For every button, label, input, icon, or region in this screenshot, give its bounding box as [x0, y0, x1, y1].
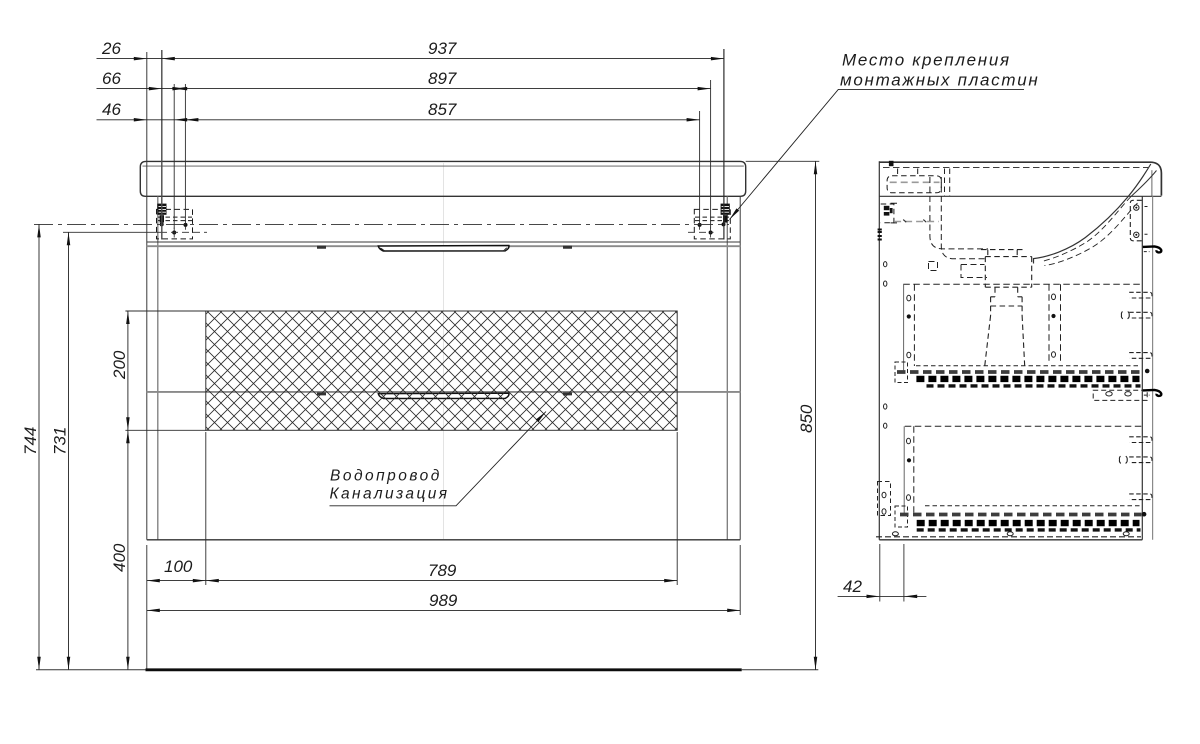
svg-text:400: 400	[110, 543, 129, 572]
svg-text:857: 857	[428, 100, 457, 119]
svg-text:Канализация: Канализация	[330, 486, 450, 503]
svg-text:42: 42	[843, 577, 862, 596]
svg-text:989: 989	[429, 591, 458, 610]
svg-text:66: 66	[102, 69, 121, 88]
svg-text:200: 200	[110, 350, 129, 380]
svg-text:Место крепления: Место крепления	[842, 51, 1011, 70]
svg-text:789: 789	[428, 561, 457, 580]
svg-text:937: 937	[428, 39, 457, 58]
svg-text:897: 897	[428, 69, 457, 88]
svg-text:100: 100	[164, 557, 193, 576]
svg-text:26: 26	[101, 39, 121, 58]
svg-text:Водопровод: Водопровод	[330, 468, 442, 485]
svg-text:850: 850	[797, 404, 816, 433]
svg-text:731: 731	[51, 427, 70, 455]
svg-text:монтажных пластин: монтажных пластин	[840, 71, 1039, 90]
svg-text:744: 744	[21, 427, 40, 455]
svg-text:46: 46	[102, 100, 121, 119]
